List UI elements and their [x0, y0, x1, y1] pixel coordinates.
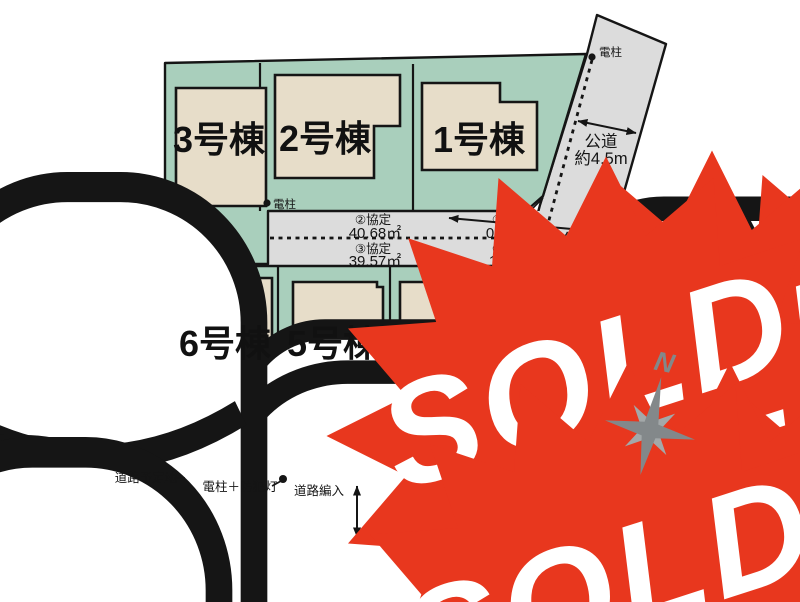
road-label-right-upper-2: 約4.5m	[574, 149, 627, 168]
utility-pole-security-light-label: 電柱＋防犯灯	[202, 479, 277, 494]
utility-pole-dot-lot2	[263, 199, 270, 206]
lot-label-2: 2号棟	[279, 118, 372, 159]
utility-pole-label-top-right: 電柱	[599, 45, 622, 59]
utility-pole-dot-top-right	[588, 53, 595, 60]
lot-label-3: 3号棟	[173, 119, 266, 160]
site-plan-page: SOLD OUT 電柱 電柱	[0, 0, 800, 602]
agreement-2-area: 40.68㎡	[349, 225, 402, 242]
lot-label-1: 1号棟	[433, 119, 526, 160]
road-incorporation-label: 道路編入	[294, 483, 345, 498]
site-plan: SOLD OUT 電柱 電柱	[0, 0, 800, 602]
planned-road-site-label: 道路予定地	[115, 470, 178, 485]
agreement-3-area: 39.57㎡	[349, 253, 402, 270]
road-label-right-upper-1: 公道	[585, 132, 618, 151]
utility-pole-label-lot2: 電柱	[273, 197, 296, 211]
lot-label-6: 6号棟	[179, 323, 272, 364]
